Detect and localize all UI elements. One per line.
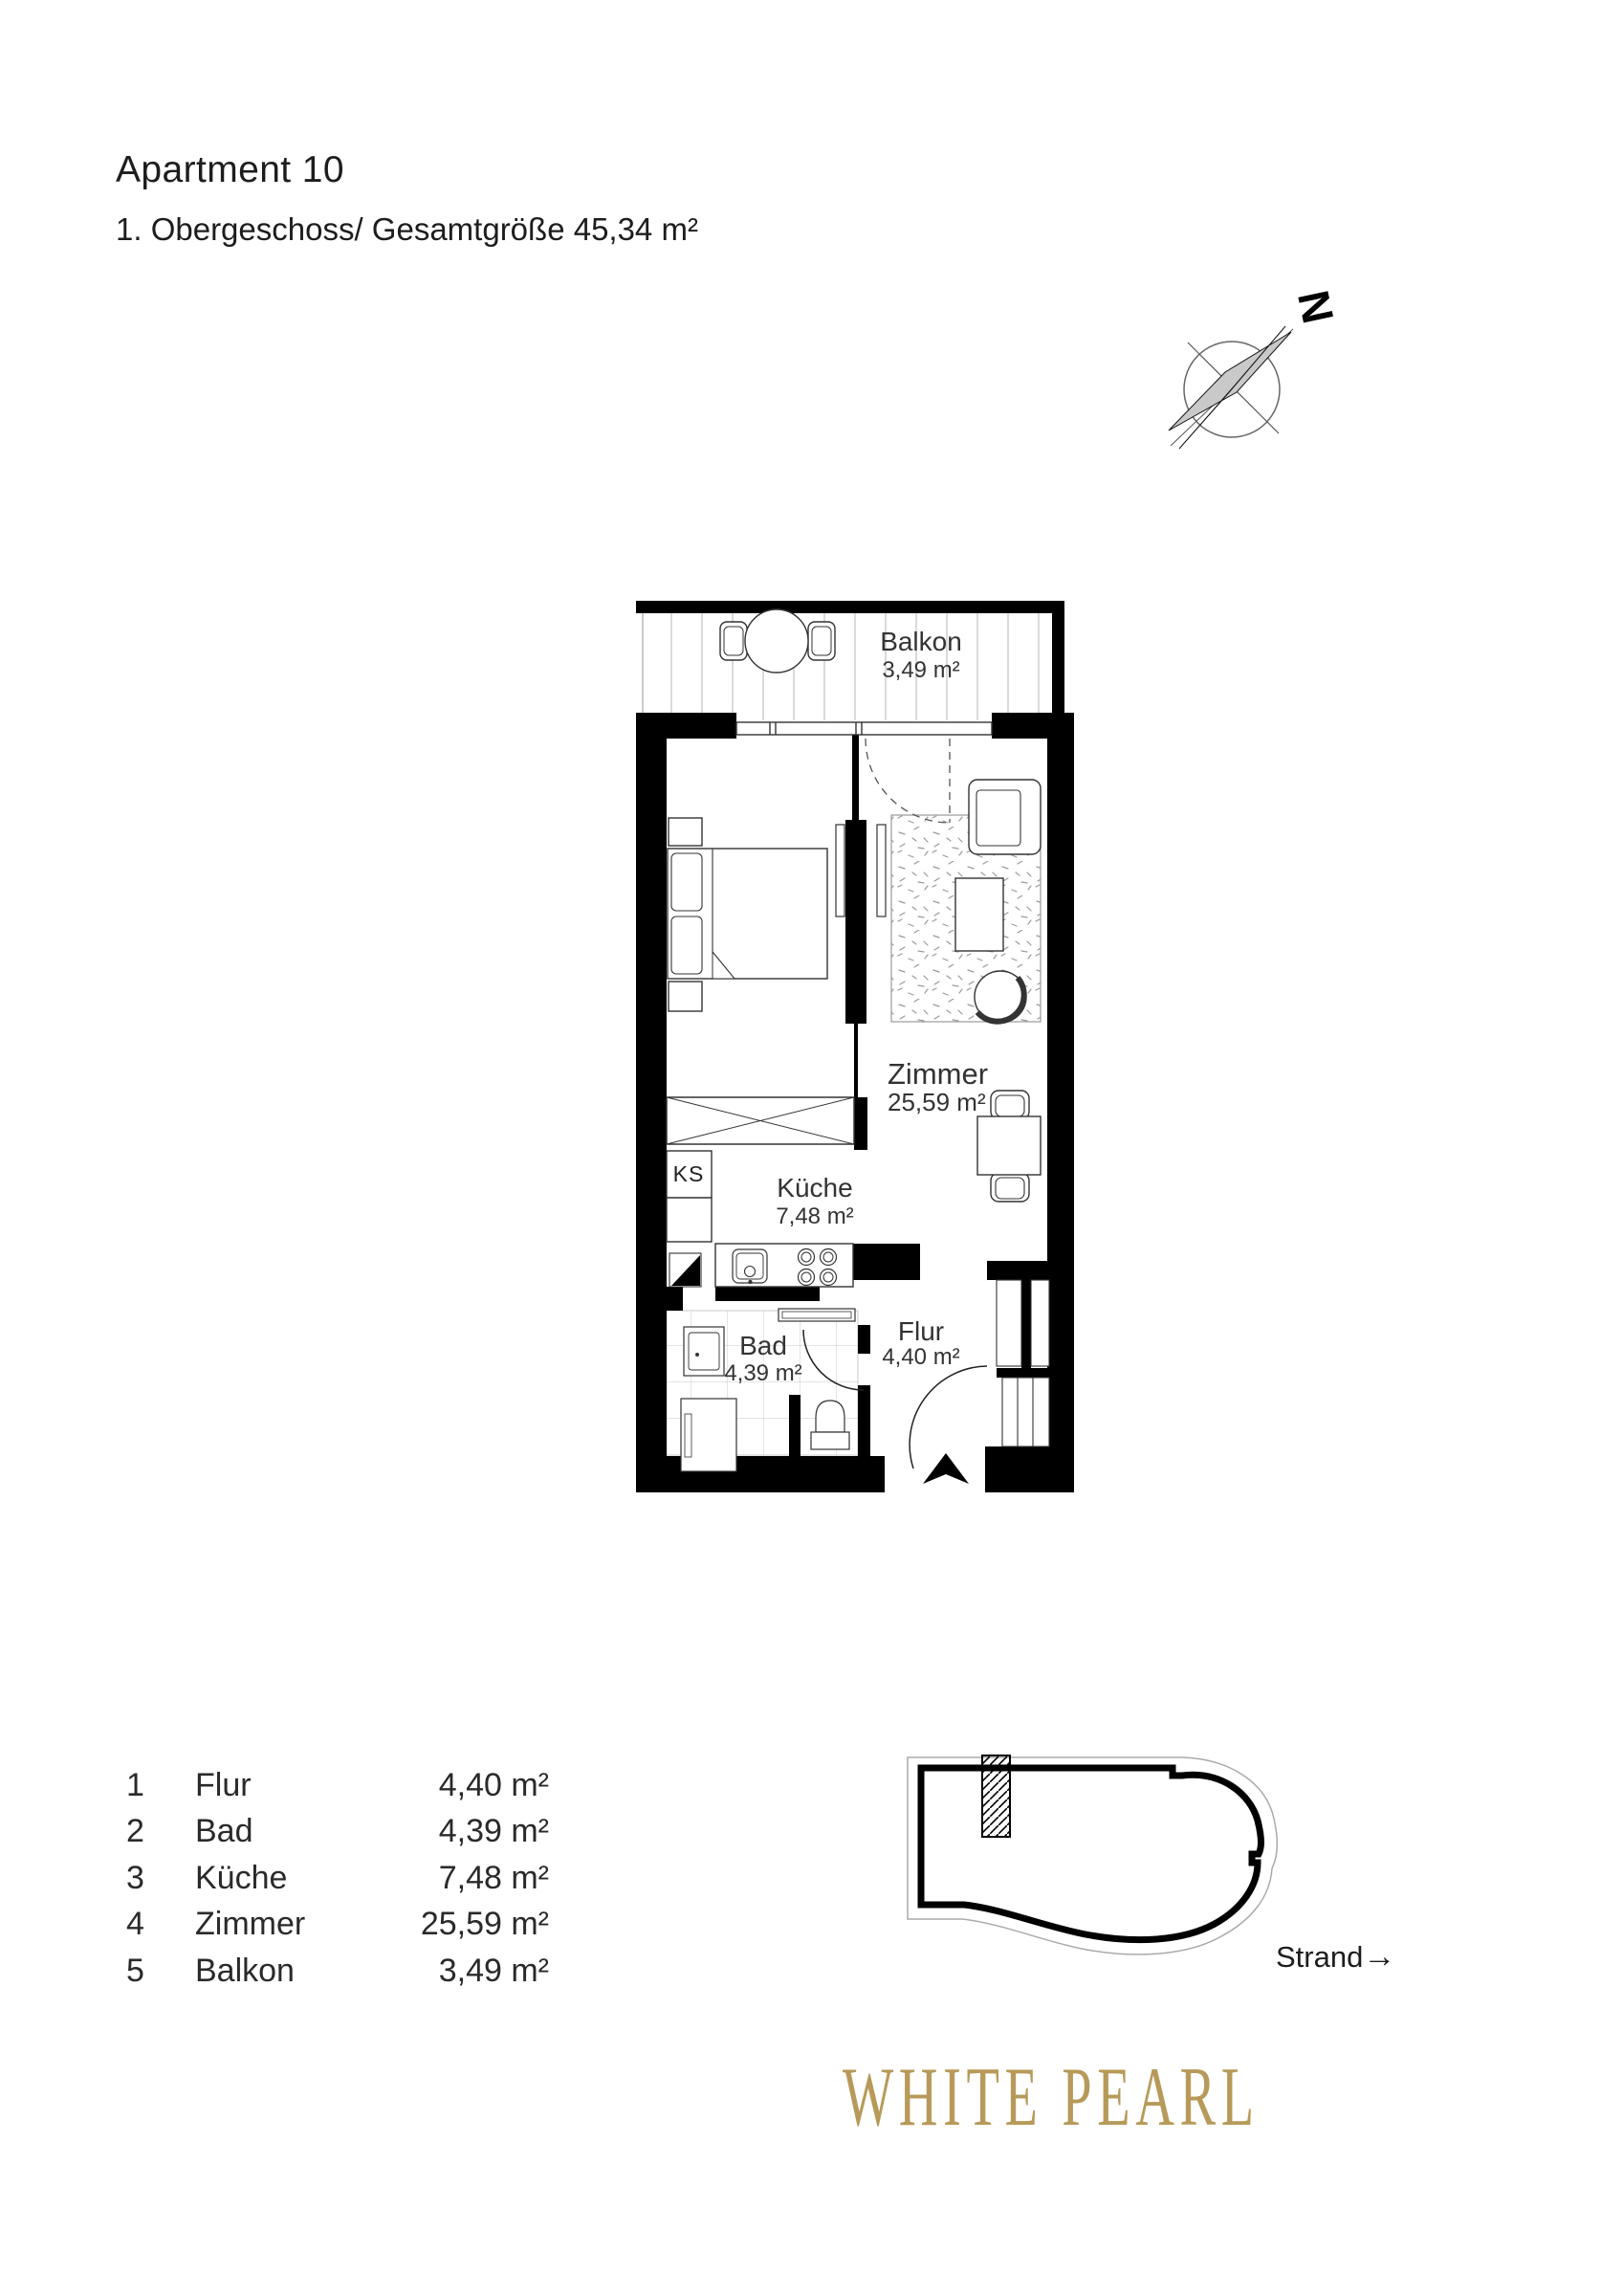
wardrobe — [667, 1097, 854, 1144]
apartment-location-hatch — [982, 1755, 1010, 1837]
room-area-balkon: 3,49 m² — [882, 657, 959, 683]
legend-row: 4 Zimmer 25,59 m² — [126, 1902, 549, 1949]
floorplan-page: Apartment 10 1. Obergeschoss/ Gesamtgröß… — [0, 0, 1623, 2296]
legend-row: 2 Bad 4,39 m² — [126, 1809, 549, 1856]
room-area-flur: 4,40 m² — [882, 1344, 959, 1370]
room-area-kueche: 7,48 m² — [776, 1203, 853, 1229]
brand-logo: WHITE PEARL — [843, 2049, 1260, 2146]
legend-num: 4 — [126, 1906, 195, 1943]
compass-needle — [1169, 332, 1291, 430]
legend-num: 1 — [126, 1767, 195, 1804]
room-label-balkon: Balkon — [880, 627, 962, 656]
room-area-zimmer: 25,59 m² — [888, 1088, 986, 1116]
room-label-flur: Flur — [898, 1316, 944, 1346]
strand-arrow-icon: → — [1363, 1940, 1395, 1973]
dining-table — [977, 1116, 1041, 1175]
balcony-round-table — [745, 609, 808, 673]
toilet — [816, 1401, 844, 1432]
legend-name: Küche — [195, 1860, 439, 1897]
building-outline — [921, 1768, 1261, 1940]
legend-area: 4,39 m² — [439, 1813, 549, 1850]
legend-area: 25,59 m² — [421, 1906, 549, 1943]
room-label-zimmer: Zimmer — [888, 1057, 988, 1091]
room-label-kueche: Küche — [777, 1173, 852, 1203]
balcony-window — [736, 722, 992, 735]
pillow — [671, 853, 702, 911]
compass-icon: N — [1129, 268, 1349, 478]
legend-name: Bad — [195, 1813, 439, 1850]
legend-name: Flur — [195, 1767, 439, 1804]
kitchen-counter — [669, 1244, 853, 1287]
balcony-decking — [643, 613, 1039, 720]
fridge-label: KS — [673, 1161, 705, 1186]
entrance-door-swing — [910, 1366, 987, 1468]
pillow — [671, 916, 702, 974]
legend-area: 3,49 m² — [439, 1953, 549, 1990]
legend-num: 2 — [126, 1813, 195, 1850]
balcony-table-set — [720, 609, 835, 673]
balcony-door-swing — [866, 739, 950, 823]
page-subtitle: 1. Obergeschoss/ Gesamtgröße 45,34 m² — [116, 211, 698, 248]
page-title: Apartment 10 — [116, 149, 344, 191]
compass-north-label: N — [1288, 286, 1344, 327]
legend-area: 7,48 m² — [439, 1860, 549, 1897]
legend-num: 3 — [126, 1860, 195, 1897]
legend-name: Zimmer — [195, 1906, 421, 1943]
legend-row: 3 Küche 7,48 m² — [126, 1855, 549, 1902]
building-site-plan — [897, 1743, 1289, 1963]
coffee-table — [955, 878, 1003, 951]
legend-row: 5 Balkon 3,49 m² — [126, 1948, 549, 1995]
strand-text: Strand — [1276, 1940, 1363, 1975]
strand-label: Strand→ — [1276, 1940, 1395, 1975]
apartment-floorplan: Balkon 3,49 m² Zimmer 25,59 m² Küche 7,4… — [612, 574, 1100, 1521]
legend-row: 1 Flur 4,40 m² — [126, 1762, 549, 1809]
bed — [668, 818, 827, 1011]
room-area-bad: 4,39 m² — [724, 1360, 801, 1386]
legend-num: 5 — [126, 1953, 195, 1990]
legend-name: Balkon — [195, 1953, 439, 1990]
entrance-arrow-icon — [923, 1453, 969, 1484]
kitchen-sink — [733, 1249, 767, 1284]
room-label-bad: Bad — [739, 1331, 787, 1360]
room-legend: 1 Flur 4,40 m² 2 Bad 4,39 m² 3 Küche 7,4… — [126, 1762, 549, 1995]
legend-area: 4,40 m² — [439, 1767, 549, 1804]
